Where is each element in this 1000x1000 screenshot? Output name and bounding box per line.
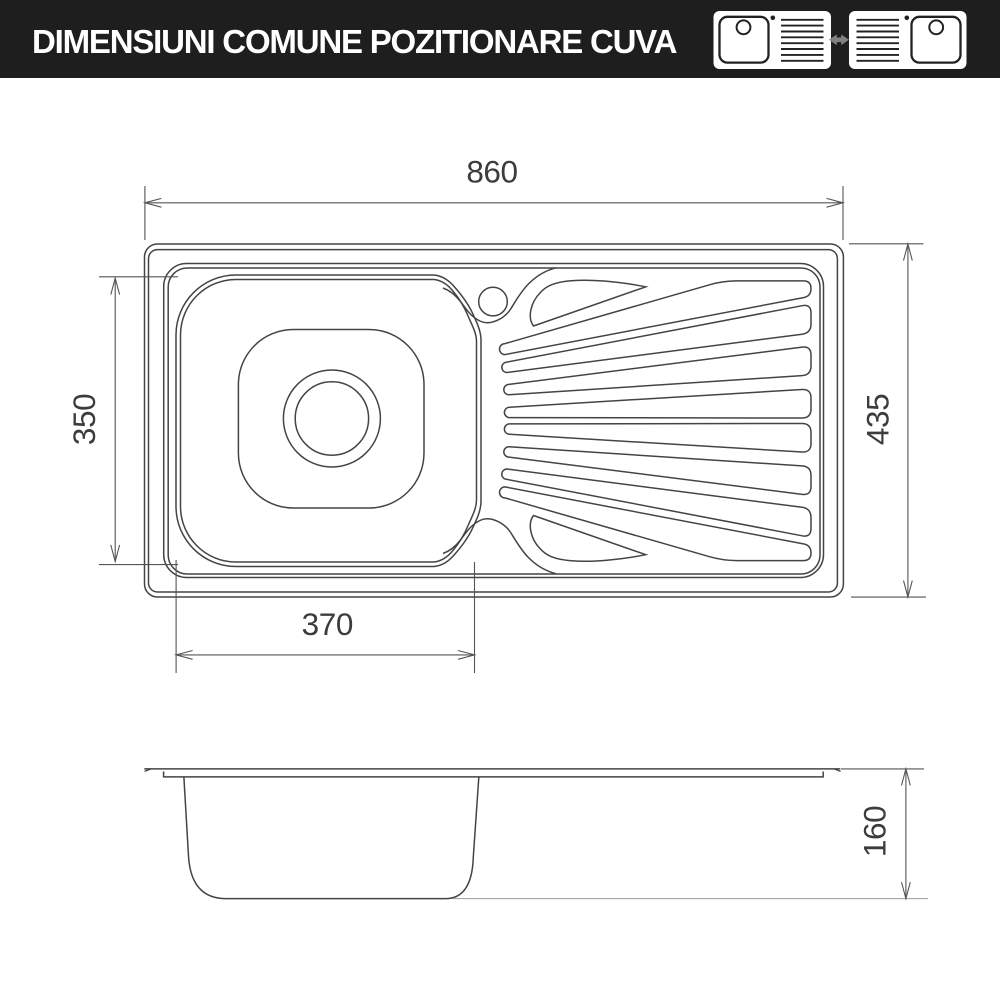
svg-text:370: 370 <box>302 606 353 642</box>
svg-text:435: 435 <box>860 394 896 445</box>
svg-text:350: 350 <box>66 394 102 445</box>
svg-text:160: 160 <box>857 806 893 857</box>
svg-text:860: 860 <box>466 154 517 190</box>
svg-text:DIMENSIUNI COMUNE POZITIONARE: DIMENSIUNI COMUNE POZITIONARE CUVA <box>32 23 677 60</box>
